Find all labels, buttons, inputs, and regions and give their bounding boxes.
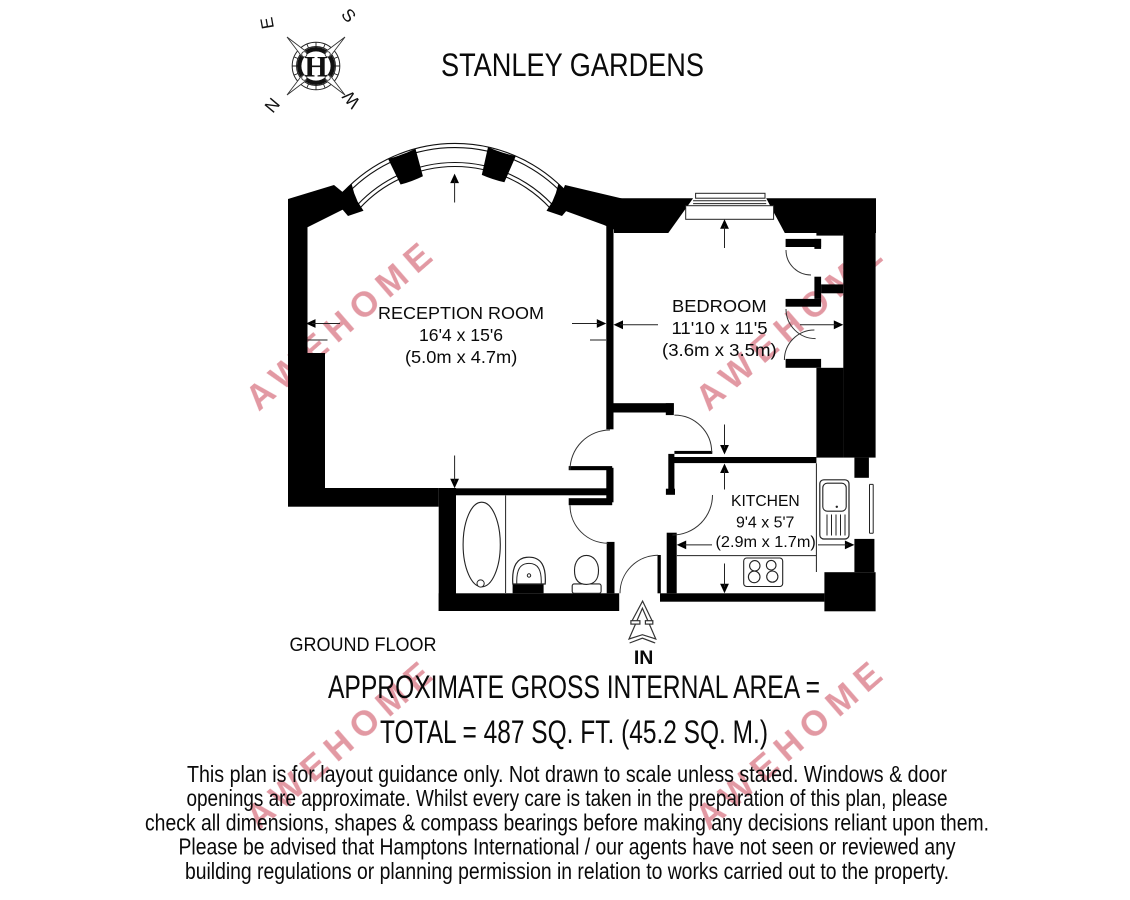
svg-text:H: H [304,51,327,84]
svg-text:Please be advised that Hampton: Please be advised that Hamptons Internat… [179,834,956,860]
svg-text:S: S [337,4,360,26]
svg-text:TOTAL = 487 SQ. FT. (45.2 SQ.: TOTAL = 487 SQ. FT. (45.2 SQ. M.) [380,714,768,750]
svg-text:9'4 x 5'7: 9'4 x 5'7 [736,515,794,532]
svg-text:(2.9m x 1.7m): (2.9m x 1.7m) [716,534,816,551]
svg-text:11'10 x 11'5: 11'10 x 11'5 [672,318,768,338]
svg-text:16'4 x 15'6: 16'4 x 15'6 [419,325,503,345]
svg-text:STANLEY GARDENS: STANLEY GARDENS [441,47,704,83]
svg-text:building regulations or planni: building regulations or planning permiss… [185,858,949,884]
svg-text:E: E [256,16,278,31]
svg-text:(5.0m x 4.7m): (5.0m x 4.7m) [405,347,517,367]
svg-text:AWEHOME: AWEHOME [238,231,445,418]
svg-text:IN: IN [634,647,654,669]
svg-text:(3.6m x 3.5m): (3.6m x 3.5m) [662,340,777,360]
svg-text:BEDROOM: BEDROOM [672,296,767,316]
svg-text:N: N [261,94,284,117]
svg-text:check all dimensions, shapes &: check all dimensions, shapes & compass b… [145,809,989,835]
svg-text:APPROXIMATE GROSS INTERNAL ARE: APPROXIMATE GROSS INTERNAL AREA = [328,669,820,705]
svg-text:RECEPTION ROOM: RECEPTION ROOM [378,303,544,323]
svg-text:openings are approximate. Whil: openings are approximate. Whilst every c… [187,785,948,811]
svg-text:KITCHEN: KITCHEN [731,493,800,510]
svg-text:GROUND FLOOR: GROUND FLOOR [290,635,437,656]
svg-text:This plan is for layout guidan: This plan is for layout guidance only. N… [187,761,947,787]
